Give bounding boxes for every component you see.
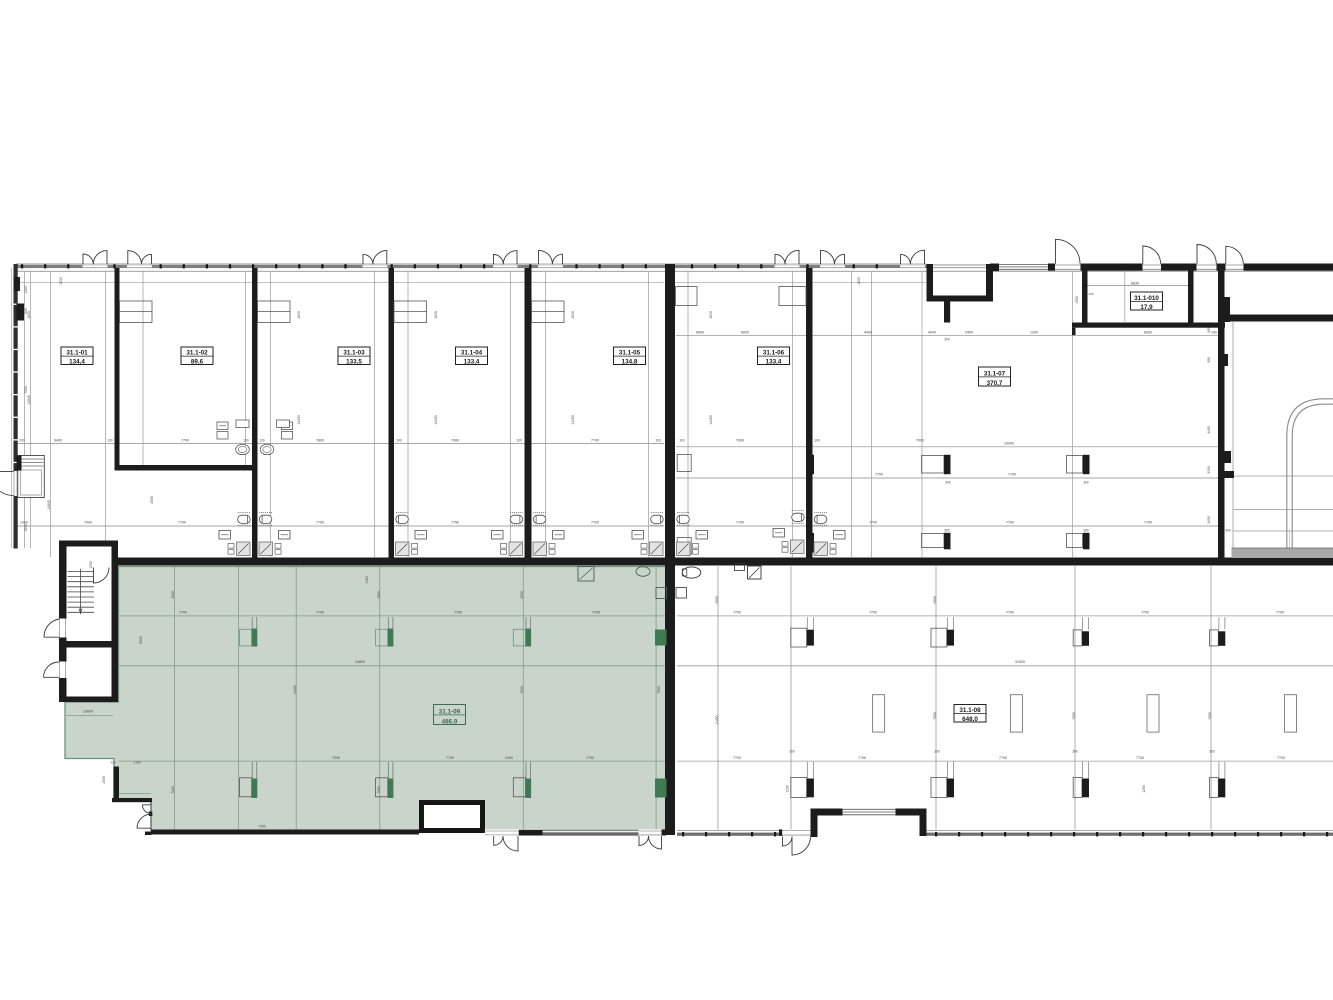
svg-text:2900: 2900 (715, 596, 719, 604)
svg-text:300: 300 (1083, 529, 1089, 533)
svg-text:4400: 4400 (1207, 426, 1211, 434)
svg-text:7700: 7700 (179, 611, 187, 615)
svg-text:7700: 7700 (178, 521, 186, 525)
svg-text:300: 300 (1209, 750, 1215, 754)
svg-text:14945: 14945 (27, 395, 31, 404)
svg-text:300: 300 (789, 750, 795, 754)
svg-text:31.1-01: 31.1-01 (66, 350, 88, 357)
svg-text:7700: 7700 (1136, 756, 1144, 760)
svg-text:10900: 10900 (1004, 442, 1014, 446)
svg-text:7700: 7700 (591, 439, 599, 443)
svg-text:2900: 2900 (520, 591, 524, 599)
svg-text:100: 100 (1211, 330, 1217, 334)
svg-text:14400: 14400 (571, 415, 575, 424)
svg-text:2130: 2130 (133, 761, 140, 765)
svg-text:1830: 1830 (571, 311, 575, 319)
svg-text:31.1-07: 31.1-07 (984, 370, 1006, 377)
svg-text:7700: 7700 (999, 756, 1007, 760)
svg-text:7700: 7700 (733, 756, 741, 760)
svg-text:300: 300 (945, 481, 951, 485)
svg-text:7000: 7000 (84, 521, 92, 525)
svg-text:1400: 1400 (24, 286, 28, 294)
svg-text:7700: 7700 (316, 611, 324, 615)
svg-text:100: 100 (679, 439, 685, 443)
svg-text:7700: 7700 (1144, 521, 1152, 525)
svg-text:7500: 7500 (1208, 712, 1212, 720)
svg-text:11400: 11400 (715, 715, 719, 724)
svg-text:1200: 1200 (786, 785, 790, 793)
svg-text:7200: 7200 (258, 825, 265, 829)
svg-text:1830: 1830 (434, 311, 438, 319)
svg-text:7700: 7700 (1006, 611, 1014, 615)
svg-text:6000: 6000 (741, 330, 749, 334)
svg-text:6830: 6830 (1131, 282, 1139, 286)
svg-text:100: 100 (243, 439, 249, 443)
svg-text:8300: 8300 (1144, 330, 1152, 334)
svg-text:1500: 1500 (24, 524, 28, 532)
svg-text:100: 100 (1088, 292, 1093, 296)
svg-text:133,4: 133,4 (766, 359, 782, 366)
svg-text:7500: 7500 (377, 786, 381, 794)
svg-text:3400: 3400 (1207, 516, 1211, 524)
svg-text:31.1-04: 31.1-04 (461, 350, 483, 357)
svg-text:205: 205 (110, 761, 115, 765)
svg-text:300: 300 (944, 529, 950, 533)
svg-text:300: 300 (1225, 529, 1231, 533)
svg-text:300: 300 (1072, 750, 1078, 754)
svg-text:7500: 7500 (520, 686, 524, 694)
svg-text:7700: 7700 (181, 439, 189, 443)
svg-text:4400: 4400 (864, 330, 872, 334)
svg-text:7900: 7900 (451, 439, 459, 443)
svg-text:100: 100 (516, 439, 522, 443)
svg-text:14945: 14945 (47, 500, 51, 509)
svg-text:7900: 7900 (916, 439, 924, 443)
svg-text:31.1-010: 31.1-010 (1134, 295, 1159, 302)
svg-text:7700: 7700 (869, 611, 877, 615)
svg-text:7500: 7500 (171, 786, 175, 794)
svg-text:4940: 4940 (928, 330, 936, 334)
svg-text:17,9: 17,9 (1140, 304, 1153, 311)
svg-text:31900: 31900 (1015, 660, 1025, 664)
svg-text:9400: 9400 (54, 439, 62, 443)
svg-text:14400: 14400 (709, 415, 713, 424)
svg-text:2400: 2400 (965, 330, 973, 334)
svg-text:1500: 1500 (102, 776, 106, 784)
svg-text:100: 100 (396, 439, 402, 443)
svg-text:7700: 7700 (869, 521, 877, 525)
svg-text:900: 900 (1207, 327, 1211, 333)
svg-text:2500: 2500 (150, 496, 154, 504)
svg-text:1000: 1000 (1075, 296, 1079, 304)
svg-text:2900: 2900 (377, 591, 381, 599)
svg-text:7700: 7700 (591, 521, 599, 525)
svg-text:13400: 13400 (293, 685, 297, 694)
svg-text:89,6: 89,6 (191, 359, 204, 366)
svg-text:1830: 1830 (857, 277, 861, 285)
svg-text:1830: 1830 (297, 311, 301, 319)
svg-text:1830: 1830 (709, 311, 713, 319)
svg-text:1200: 1200 (1030, 330, 1038, 334)
svg-text:31.1-08: 31.1-08 (959, 707, 981, 714)
svg-text:7700: 7700 (858, 756, 866, 760)
svg-text:7800: 7800 (316, 439, 324, 443)
svg-text:7750: 7750 (451, 521, 459, 525)
svg-text:7000: 7000 (332, 756, 340, 760)
svg-text:7750: 7750 (316, 521, 324, 525)
svg-text:31.1-09: 31.1-09 (439, 708, 461, 715)
svg-text:3300: 3300 (1207, 466, 1211, 474)
svg-text:1200: 1200 (1142, 785, 1146, 793)
svg-text:7900: 7900 (736, 439, 744, 443)
svg-text:31.1-03: 31.1-03 (343, 350, 365, 357)
svg-text:648,0: 648,0 (962, 716, 978, 723)
svg-text:1360: 1360 (365, 576, 369, 584)
svg-text:134,4: 134,4 (69, 359, 85, 366)
svg-text:100: 100 (655, 439, 661, 443)
svg-text:1300: 1300 (20, 521, 28, 525)
svg-text:7700: 7700 (586, 756, 594, 760)
svg-text:7700: 7700 (592, 611, 600, 615)
svg-text:1830: 1830 (59, 277, 63, 285)
svg-text:100: 100 (19, 439, 25, 443)
svg-text:7700: 7700 (1008, 473, 1016, 477)
svg-text:300: 300 (1083, 481, 1089, 485)
svg-text:31.1-02: 31.1-02 (186, 350, 208, 357)
svg-text:100: 100 (259, 439, 265, 443)
svg-text:7700: 7700 (1277, 756, 1285, 760)
svg-text:2900: 2900 (171, 591, 175, 599)
svg-text:7700: 7700 (1141, 611, 1149, 615)
svg-text:10000: 10000 (83, 710, 93, 714)
svg-text:7700: 7700 (446, 756, 454, 760)
svg-text:7700: 7700 (875, 473, 883, 477)
svg-text:7700: 7700 (1276, 611, 1284, 615)
svg-text:7500: 7500 (657, 686, 661, 694)
svg-text:6000: 6000 (139, 636, 143, 644)
svg-text:134,8: 134,8 (622, 359, 638, 366)
svg-text:900: 900 (1207, 357, 1211, 363)
svg-text:100: 100 (814, 439, 820, 443)
svg-text:300: 300 (934, 750, 940, 754)
svg-text:486,9: 486,9 (442, 719, 458, 726)
svg-text:31.1-06: 31.1-06 (763, 350, 785, 357)
svg-text:2900: 2900 (933, 596, 937, 604)
svg-text:7700: 7700 (733, 611, 741, 615)
svg-text:14400: 14400 (297, 415, 301, 424)
svg-text:14400: 14400 (434, 415, 438, 424)
svg-text:370,7: 370,7 (987, 380, 1003, 387)
svg-text:7700: 7700 (454, 611, 462, 615)
svg-text:7500: 7500 (1072, 712, 1076, 720)
svg-text:7900: 7900 (24, 386, 28, 394)
svg-text:7700: 7700 (1006, 521, 1014, 525)
svg-text:133,4: 133,4 (464, 359, 480, 366)
svg-text:7700: 7700 (736, 521, 744, 525)
svg-text:600: 600 (24, 308, 28, 314)
svg-text:133,5: 133,5 (346, 359, 362, 366)
svg-text:100: 100 (107, 439, 113, 443)
svg-text:1200: 1200 (89, 561, 93, 569)
svg-text:24800: 24800 (355, 660, 365, 664)
svg-text:6600: 6600 (696, 330, 704, 334)
svg-text:7500: 7500 (933, 712, 937, 720)
svg-text:31.1-05: 31.1-05 (619, 350, 641, 357)
svg-text:300: 300 (944, 338, 950, 342)
svg-text:2400: 2400 (505, 756, 513, 760)
